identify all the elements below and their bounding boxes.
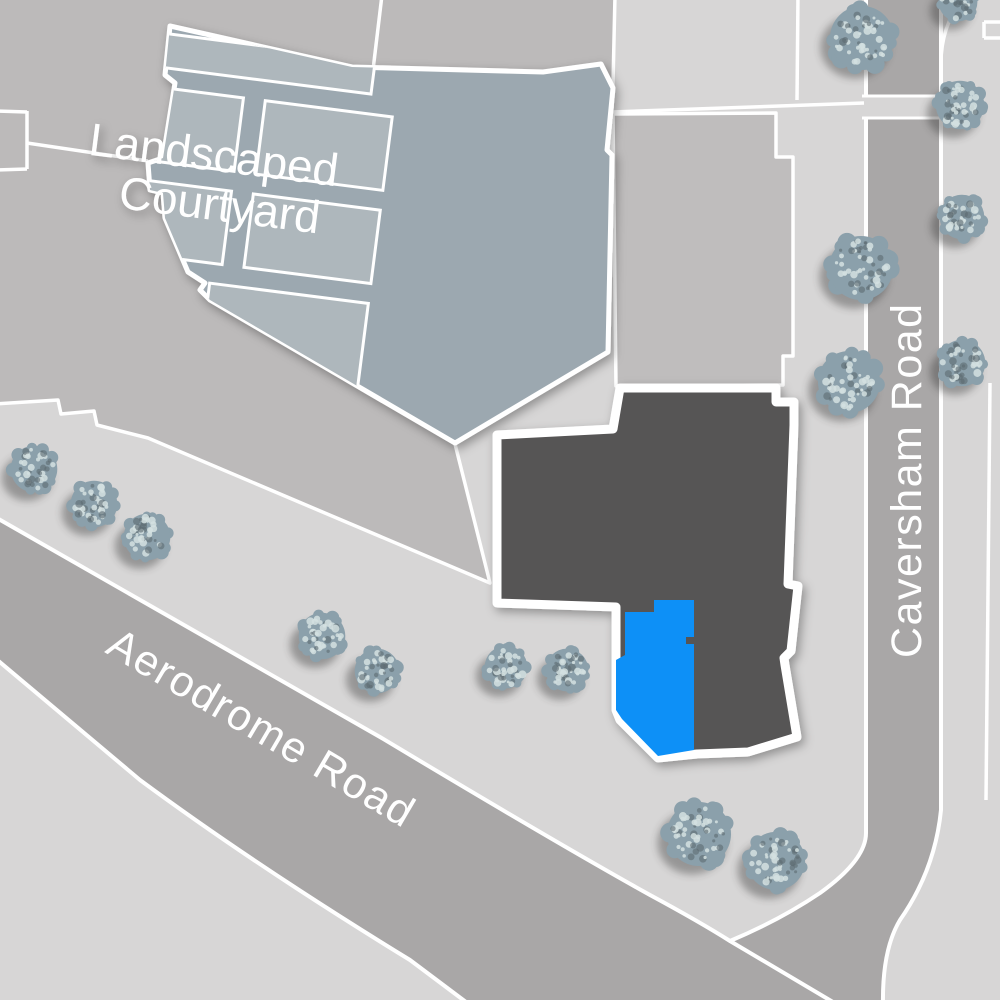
parcel-line-vertical <box>797 0 798 100</box>
road-label-caversham: Caversham Road <box>883 302 931 658</box>
parcel-above-building <box>613 113 793 386</box>
site-plan-map: Landscaped Courtyard Aerodrome Road Cave… <box>0 0 1000 1000</box>
map-canvas: Landscaped Courtyard Aerodrome Road Cave… <box>0 0 1000 1000</box>
